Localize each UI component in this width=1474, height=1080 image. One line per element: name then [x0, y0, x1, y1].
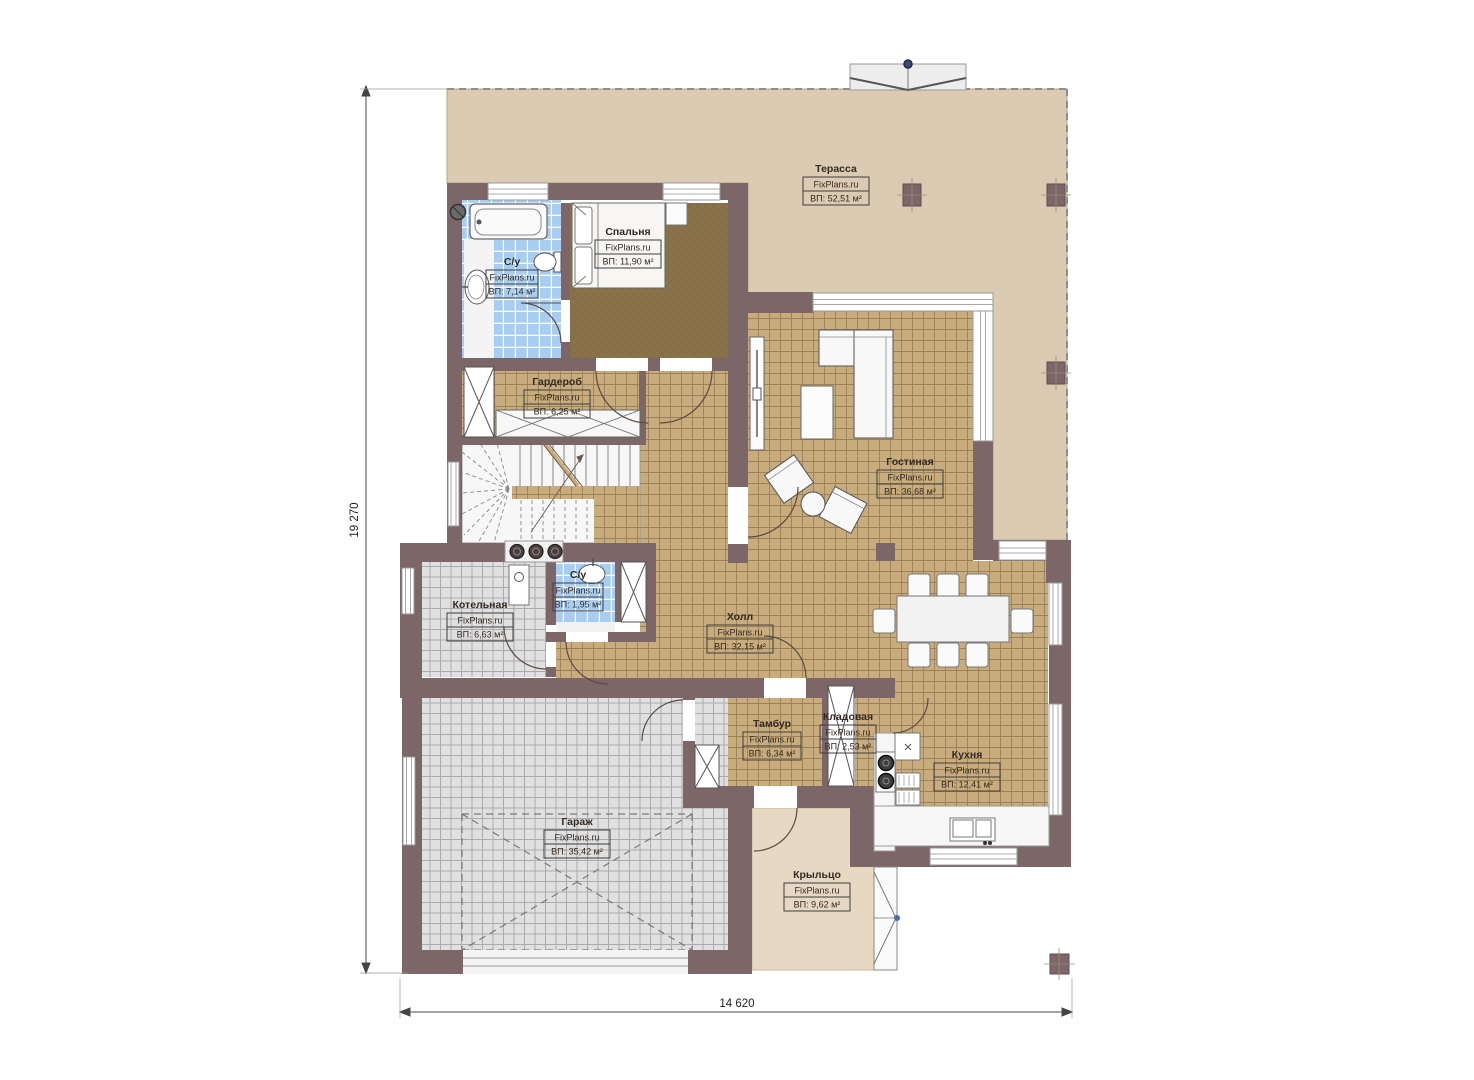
svg-text:ВП: 7,14 м²: ВП: 7,14 м² [489, 287, 536, 297]
svg-text:FixPlans.ru: FixPlans.ru [749, 735, 794, 745]
svg-text:FixPlans.ru: FixPlans.ru [887, 473, 932, 483]
svg-text:ВП: 1,95 м²: ВП: 1,95 м² [555, 600, 602, 610]
svg-text:Гараж: Гараж [561, 816, 593, 828]
svg-text:FixPlans.ru: FixPlans.ru [555, 586, 600, 596]
svg-text:ВП: 12,41 м²: ВП: 12,41 м² [941, 780, 993, 790]
svg-text:Спальня: Спальня [605, 226, 650, 238]
svg-text:Кладовая: Кладовая [823, 711, 873, 723]
svg-text:FixPlans.ru: FixPlans.ru [534, 393, 579, 403]
svg-text:Котельная: Котельная [453, 599, 508, 611]
svg-text:С/у: С/у [570, 569, 587, 581]
svg-text:ВП: 6,34 м²: ВП: 6,34 м² [749, 749, 796, 759]
svg-text:14 620: 14 620 [719, 998, 754, 1010]
svg-text:ВП: 11,90 м²: ВП: 11,90 м² [602, 257, 653, 267]
svg-text:FixPlans.ru: FixPlans.ru [457, 616, 502, 626]
svg-text:ВП: 6,63 м²: ВП: 6,63 м² [457, 630, 504, 640]
svg-text:Гостиная: Гостиная [886, 456, 933, 468]
svg-text:Крыльцо: Крыльцо [793, 869, 841, 881]
svg-text:ВП: 36,68 м²: ВП: 36,68 м² [884, 487, 936, 497]
svg-text:ВП: 9,62 м²: ВП: 9,62 м² [794, 900, 841, 910]
svg-text:FixPlans.ru: FixPlans.ru [944, 766, 989, 776]
svg-text:Холл: Холл [727, 611, 753, 623]
svg-text:Кухня: Кухня [952, 749, 983, 761]
svg-text:ВП: 2,53 м²: ВП: 2,53 м² [825, 742, 872, 752]
svg-text:FixPlans.ru: FixPlans.ru [825, 728, 870, 738]
svg-text:FixPlans.ru: FixPlans.ru [717, 628, 762, 638]
svg-text:Тамбур: Тамбур [753, 718, 791, 730]
svg-text:ВП: 32,15 м²: ВП: 32,15 м² [714, 642, 766, 652]
svg-text:FixPlans.ru: FixPlans.ru [554, 833, 599, 843]
svg-text:FixPlans.ru: FixPlans.ru [489, 273, 534, 283]
svg-text:С/у: С/у [504, 256, 521, 268]
svg-text:FixPlans.ru: FixPlans.ru [605, 243, 650, 253]
svg-text:Терасса: Терасса [815, 163, 857, 175]
svg-text:Гардероб: Гардероб [532, 376, 582, 388]
svg-text:ВП: 6,25 м²: ВП: 6,25 м² [534, 407, 581, 417]
svg-text:ВП: 35,42 м²: ВП: 35,42 м² [551, 847, 603, 857]
svg-text:ВП: 52,51 м²: ВП: 52,51 м² [810, 194, 862, 204]
svg-text:19 270: 19 270 [349, 502, 361, 537]
svg-text:FixPlans.ru: FixPlans.ru [813, 180, 858, 190]
svg-text:FixPlans.ru: FixPlans.ru [794, 886, 839, 896]
